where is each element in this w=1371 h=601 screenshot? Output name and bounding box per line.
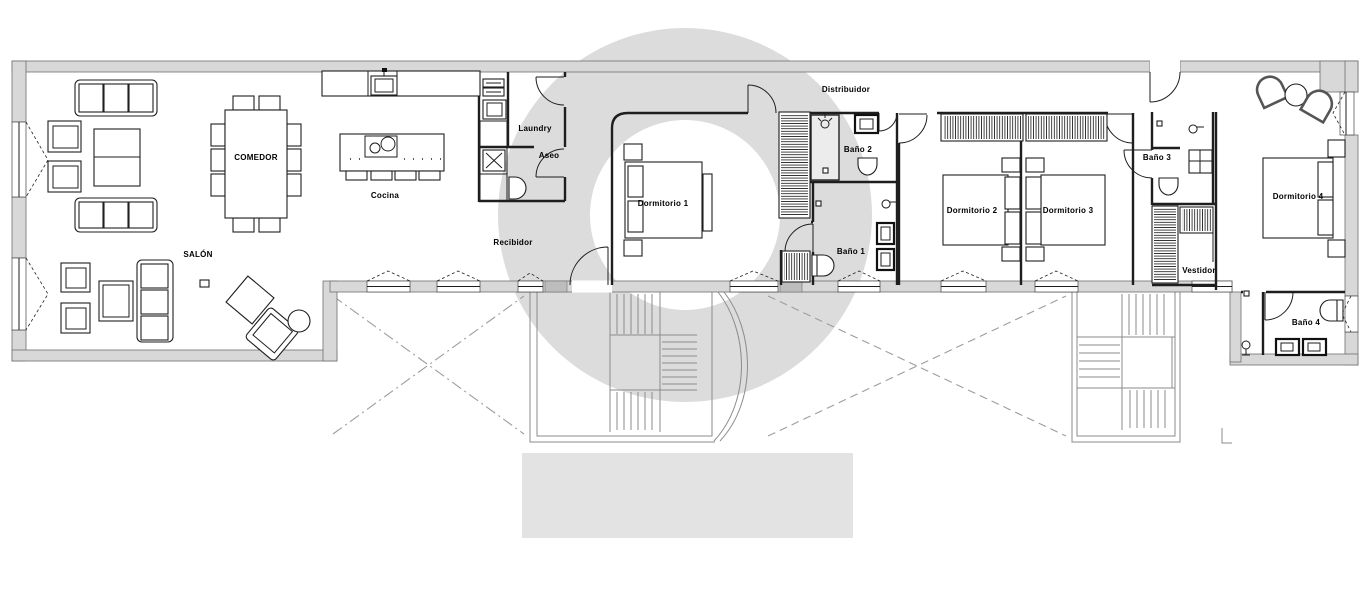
shower-head [1242,341,1250,349]
dining-table [225,110,287,218]
nightstand [1328,140,1345,157]
kitchen-island [340,134,444,171]
dining-furniture [211,96,301,232]
room-label-dormitorio-3: Dormitorio 3 [1043,206,1094,215]
bath4-sink [1303,339,1326,355]
floor-plan-page: COMEDORCocinaSALÓNLaundryAseoRecibidorDo… [0,0,1371,601]
closet-bedroom2 [941,114,1023,141]
nightstand [624,240,642,256]
closet-bedroom3 [1026,114,1107,141]
bath4-toilet [1320,300,1343,321]
vestidor-mirror [1213,220,1216,262]
room-label-dormitorio-4: Dormitorio 4 [1273,192,1324,201]
terrace-door-opening [1150,61,1180,73]
room-label-bano-2: Baño 2 [844,145,872,154]
floor-plan-canvas: COMEDORCocinaSALÓNLaundryAseoRecibidorDo… [0,0,1371,601]
closet-bath1 [782,251,810,282]
terrace-door [1150,72,1180,102]
threshold-block [780,281,802,292]
nightstand [624,144,642,160]
closet-vestidor-small [1180,207,1213,233]
bedroom3-door [1105,114,1133,143]
entrance-opening [572,281,612,293]
room-label-dormitorio-2: Dormitorio 2 [947,206,998,215]
room-label-laundry: Laundry [518,124,552,133]
kitchen-counter [322,71,480,96]
right-staircase [1072,292,1232,443]
void-cross-left [333,296,524,434]
tub-chair [1253,72,1288,107]
kitchen-furniture [322,68,480,180]
bedroom2-door [899,114,927,143]
bath2-toilet [858,158,877,175]
bath1-sink [877,249,894,270]
bath1-sink [877,223,894,244]
room-label-bano-4: Baño 4 [1292,318,1320,327]
room-label-bano-3: Baño 3 [1143,153,1171,162]
bath4-door [1265,292,1293,320]
room-label-distribuidor: Distribuidor [822,85,870,94]
threshold-block [545,281,567,292]
room-label-vestidor: Vestidor [1182,266,1216,275]
room-label-salon: SALÓN [183,250,212,259]
round-side-table [288,310,310,332]
room-label-bano-1: Baño 1 [837,247,865,256]
bath2-door [879,113,897,131]
bath1-toilet [812,255,834,276]
side-table [99,281,133,321]
room-label-cocina: Cocina [371,191,399,200]
towel-rail [882,200,897,208]
aseo-toilet [509,177,526,199]
bath3-toilet [1159,178,1178,195]
towel-rail [1189,125,1204,133]
bath4-sink [1276,339,1299,355]
room-label-dormitorio-1: Dormitorio 1 [638,199,689,208]
room-label-comedor: COMEDOR [234,153,278,162]
room-label-recibidor: Recibidor [493,238,532,247]
nightstand [1328,240,1345,257]
room-label-aseo: Aseo [539,151,560,160]
bedroom4-furniture [1253,72,1345,257]
bath2-sink [855,115,878,133]
closet-vestidor-tall [1152,206,1178,283]
watermark-block [522,453,853,538]
bed-bench [703,174,712,231]
site-corner-mark [1222,428,1232,443]
closet-bedroom1 [779,112,810,218]
floor-outlet [200,280,209,287]
